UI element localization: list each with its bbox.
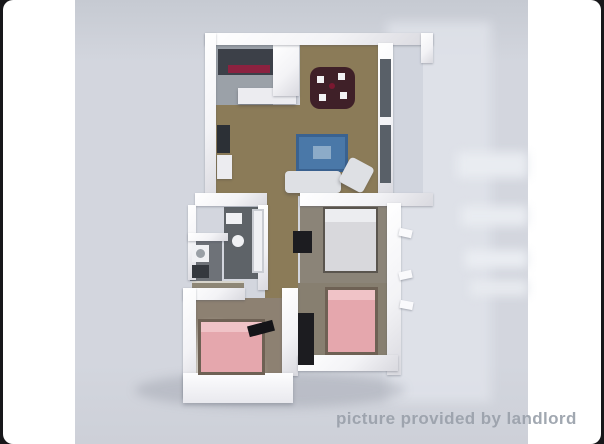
wall-top bbox=[205, 33, 433, 45]
kitchen-tall-cabinet bbox=[273, 44, 299, 96]
dining-chair bbox=[338, 73, 345, 80]
wall-bedrooms-center bbox=[282, 288, 298, 376]
bathtub bbox=[252, 209, 264, 273]
watermark-text: picture provided by landlord bbox=[336, 409, 577, 429]
wall-top-right-stub bbox=[421, 33, 433, 63]
laundry-counter bbox=[192, 265, 209, 278]
tv-unit bbox=[217, 125, 230, 153]
door-swing bbox=[398, 270, 412, 281]
window-panel bbox=[380, 59, 391, 117]
door-swing bbox=[399, 300, 413, 310]
wall-bath-laundry bbox=[188, 233, 228, 241]
dining-chair bbox=[340, 92, 347, 99]
kitchen-counter-red-accent bbox=[228, 65, 270, 73]
reflection-band bbox=[457, 152, 528, 178]
screenshot-root: picture provided by landlord bbox=[0, 0, 604, 444]
dining-plate bbox=[329, 83, 335, 89]
dining-chair bbox=[319, 94, 326, 101]
master-bed bbox=[323, 207, 378, 273]
washer bbox=[192, 245, 209, 262]
dining-chair bbox=[317, 76, 324, 83]
blue-rug bbox=[296, 134, 348, 172]
wall-left-upper bbox=[205, 33, 216, 203]
photo-matte: picture provided by landlord bbox=[3, 0, 601, 444]
reflection-band bbox=[465, 250, 528, 268]
reflection-band bbox=[461, 206, 528, 226]
bedroom-right-bed bbox=[325, 287, 378, 355]
floorplan-render bbox=[178, 33, 433, 403]
master-bed-pillows bbox=[325, 209, 376, 222]
window-panel bbox=[380, 125, 391, 183]
wall-mid-left bbox=[195, 193, 267, 206]
reflection-band bbox=[470, 280, 528, 296]
coffee-table bbox=[313, 146, 331, 159]
bedroom-right-pillows bbox=[328, 290, 375, 300]
balcony-glass bbox=[393, 45, 423, 193]
washer-door bbox=[196, 249, 205, 258]
wall-mid-right bbox=[300, 193, 433, 206]
master-wardrobe bbox=[293, 231, 312, 253]
white-sofa bbox=[285, 171, 341, 193]
wall-bedroom-left-bottom bbox=[183, 373, 293, 403]
dining-table bbox=[310, 67, 355, 109]
toilet bbox=[232, 235, 244, 247]
photo-background bbox=[75, 0, 528, 444]
side-cabinet bbox=[217, 155, 232, 179]
sink bbox=[226, 213, 242, 224]
bedroom-right-wardrobe bbox=[298, 313, 314, 365]
